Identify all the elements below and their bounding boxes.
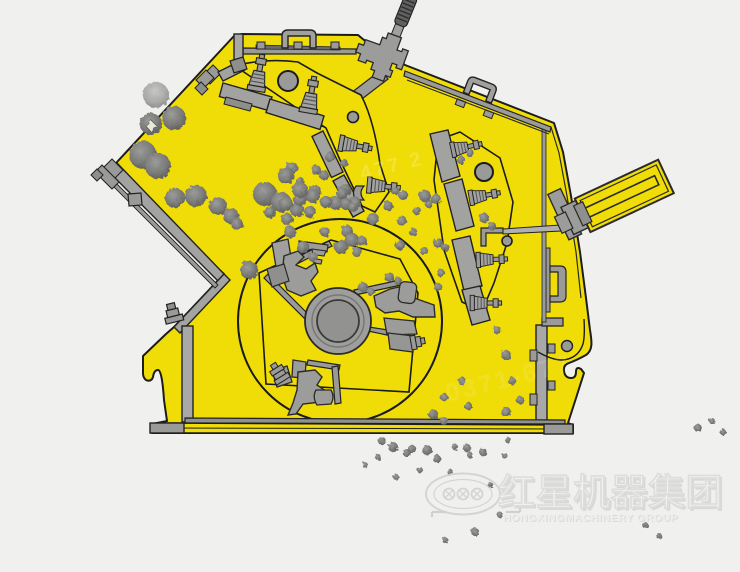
svg-text:红星机器集团: 红星机器集团: [498, 472, 723, 513]
svg-text:HONGXINGMACHINERY GROUP: HONGXINGMACHINERY GROUP: [503, 512, 678, 524]
